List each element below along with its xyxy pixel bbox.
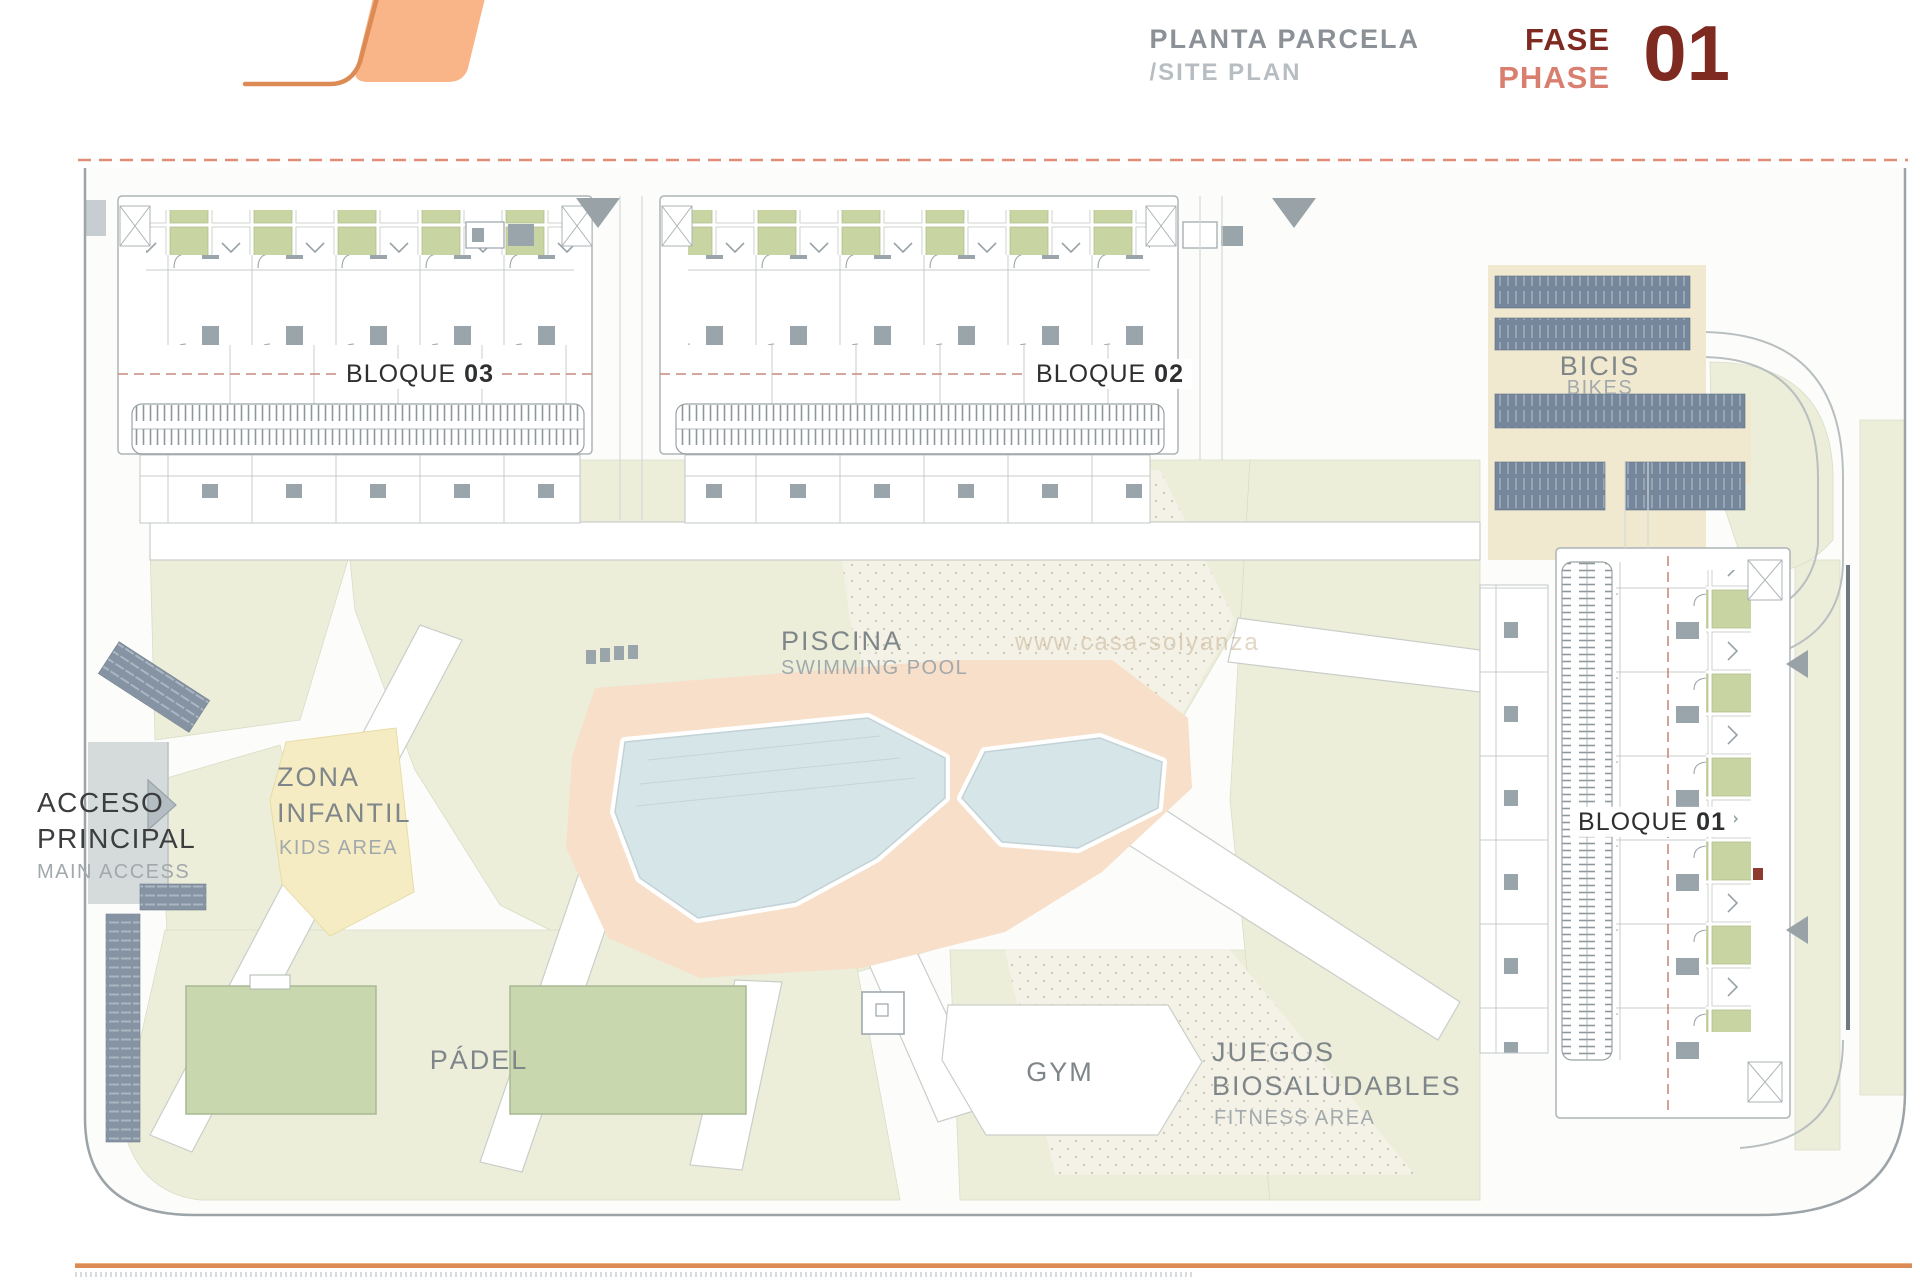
footer-orange-rule	[75, 1263, 1912, 1268]
label-pool-en: SWIMMING POOL	[781, 658, 968, 679]
label-bloque-03: BLOQUE 03	[338, 359, 502, 389]
curb-mark	[86, 200, 106, 236]
label-kids-es-line2: INFANTIL	[277, 799, 412, 827]
label-bloque-01: BLOQUE 01	[1570, 807, 1734, 837]
footer-fineprint-strip	[75, 1272, 1195, 1277]
label-access-es-line1: ACCESO	[37, 788, 164, 817]
phase-number: 01	[1643, 8, 1730, 99]
label-access-en: MAIN ACCESS	[37, 862, 190, 883]
label-bikes-en: BIKES	[1567, 378, 1633, 395]
label-kids-en: KIDS AREA	[279, 838, 398, 859]
label-kids-es-line1: ZONA	[277, 763, 360, 791]
page-title-block: PLANTA PARCELA /SITE PLAN	[1150, 24, 1421, 87]
padel-court-left	[186, 986, 376, 1114]
title-es: PLANTA PARCELA	[1150, 24, 1421, 55]
site-plan-drawing	[0, 0, 1920, 1280]
phase-label-en: PHASE	[1498, 60, 1610, 96]
phase-label-block: FASE PHASE	[1498, 22, 1610, 96]
padel-court-right	[510, 986, 746, 1114]
label-bloque-02: BLOQUE 02	[1028, 359, 1192, 389]
label-bikes-es: BICIS	[1560, 352, 1641, 380]
label-fitness-es-line1: JUEGOS	[1212, 1038, 1335, 1066]
watermark-text: www.casa-solyanza	[1015, 630, 1260, 655]
label-padel: PÁDEL	[430, 1046, 529, 1074]
equipment-box	[862, 992, 904, 1034]
label-fitness-en: FITNESS AREA	[1214, 1108, 1375, 1129]
title-en: /SITE PLAN	[1150, 59, 1421, 87]
phase-label-es: FASE	[1498, 22, 1610, 58]
label-access-es-line2: PRINCIPAL	[37, 824, 196, 853]
brand-logo	[245, 0, 489, 84]
label-pool-es: PISCINA	[781, 627, 903, 655]
site-plan-page: PLANTA PARCELA /SITE PLAN FASE PHASE 01 …	[0, 0, 1920, 1280]
label-fitness-es-line2: BIOSALUDABLES	[1212, 1072, 1462, 1100]
label-gym: GYM	[1026, 1058, 1094, 1086]
